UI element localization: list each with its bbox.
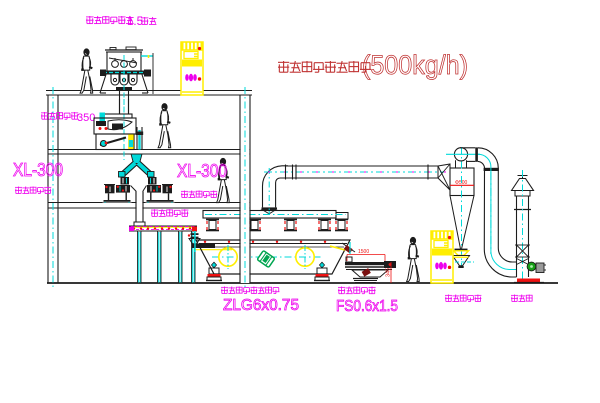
svg-text:XL-300: XL-300	[177, 161, 227, 181]
svg-text:(500kg/h): (500kg/h)	[362, 50, 468, 80]
svg-text:XL-300: XL-300	[13, 160, 63, 180]
svg-text:ZLG6x0.75: ZLG6x0.75	[223, 297, 299, 314]
svg-text:FS0.6x1.5: FS0.6x1.5	[336, 298, 398, 315]
svg-text:345: 345	[386, 268, 392, 277]
svg-text:350: 350	[77, 112, 95, 124]
svg-text:1500: 1500	[358, 249, 369, 255]
svg-text:1.5: 1.5	[127, 16, 143, 28]
